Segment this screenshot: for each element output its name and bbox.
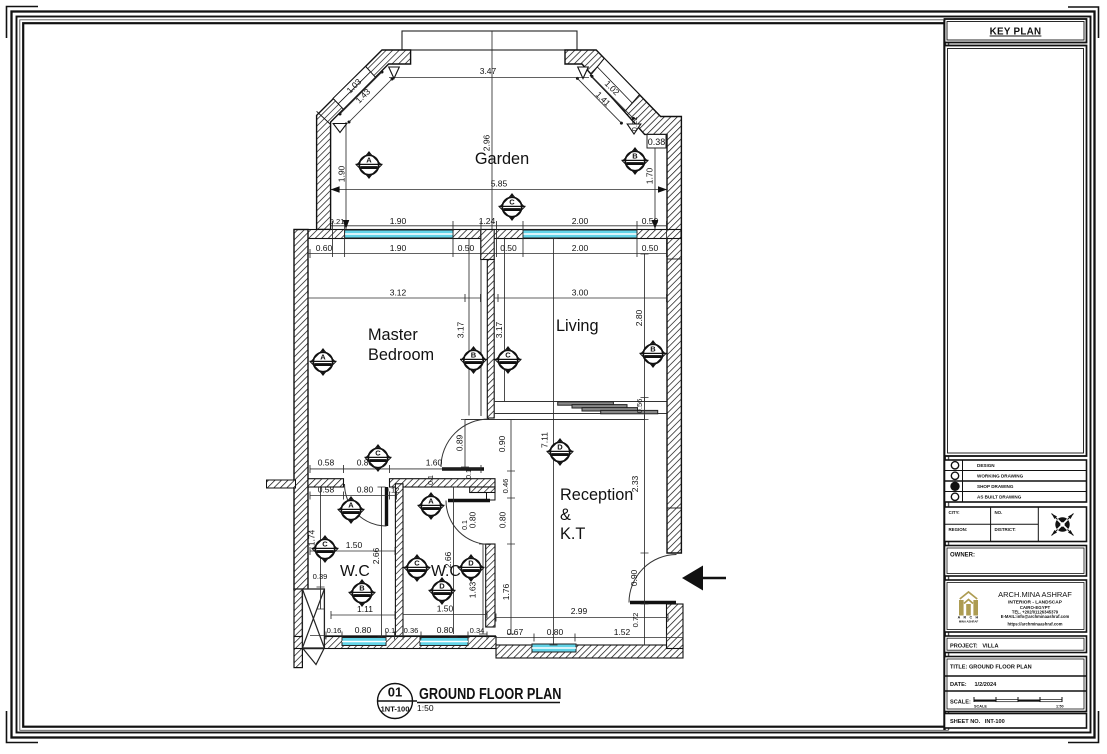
- svg-text:REGION:: REGION:: [949, 527, 968, 532]
- svg-text:C: C: [505, 350, 511, 359]
- svg-text:1.74: 1.74: [307, 529, 317, 546]
- svg-text:0.1: 0.1: [466, 469, 473, 479]
- svg-text:1.24: 1.24: [479, 216, 496, 226]
- svg-text:Living: Living: [556, 317, 599, 335]
- svg-text:CITY:: CITY:: [949, 510, 961, 515]
- svg-text:2.00: 2.00: [572, 243, 589, 253]
- svg-text:DESIGN: DESIGN: [977, 463, 995, 468]
- svg-text:0.1: 0.1: [462, 520, 469, 530]
- svg-text:1.11: 1.11: [357, 604, 373, 614]
- svg-text:C: C: [322, 539, 328, 548]
- svg-text:0.39: 0.39: [313, 572, 328, 581]
- svg-text:3.17: 3.17: [456, 321, 466, 338]
- svg-text:KEY PLAN: KEY PLAN: [990, 27, 1042, 38]
- svg-text:ARCH.MINA ASHRAF: ARCH.MINA ASHRAF: [998, 590, 1072, 599]
- svg-text:1.60: 1.60: [426, 458, 443, 468]
- svg-text:2.00: 2.00: [572, 216, 589, 226]
- svg-text:https://archminaashraf.com: https://archminaashraf.com: [1008, 622, 1063, 627]
- svg-text:0.90: 0.90: [629, 569, 639, 586]
- svg-text:&: &: [560, 506, 571, 524]
- svg-text:1.52: 1.52: [614, 627, 631, 637]
- svg-text:1.90: 1.90: [390, 216, 407, 226]
- svg-text:A: A: [428, 496, 434, 505]
- svg-text:0.72: 0.72: [631, 613, 640, 628]
- svg-text:0.60: 0.60: [316, 243, 333, 253]
- svg-text:0.50: 0.50: [642, 243, 659, 253]
- svg-text:A: A: [366, 155, 372, 164]
- svg-text:1.50: 1.50: [437, 604, 454, 614]
- svg-text:Garden: Garden: [475, 150, 529, 168]
- svg-text:DATE: 1/2/2024: DATE: 1/2/2024: [950, 682, 997, 688]
- svg-text:Reception: Reception: [560, 486, 633, 504]
- svg-text:B: B: [471, 350, 477, 359]
- svg-text:0.1: 0.1: [428, 475, 435, 485]
- svg-text:A: A: [320, 352, 326, 361]
- svg-text:0.80: 0.80: [547, 627, 564, 637]
- svg-text:3.17: 3.17: [494, 321, 504, 338]
- svg-text:1NT-100: 1NT-100: [381, 705, 410, 714]
- svg-text:E-MAIL:info@archminaashraf.com: E-MAIL:info@archminaashraf.com: [1001, 614, 1070, 619]
- svg-text:0.50: 0.50: [458, 243, 475, 253]
- svg-text:B: B: [632, 151, 638, 160]
- svg-text:NO.: NO.: [995, 510, 1003, 515]
- svg-text:3.00: 3.00: [572, 288, 589, 298]
- svg-text:0.80: 0.80: [355, 625, 372, 635]
- svg-text:W.C: W.C: [340, 563, 370, 580]
- svg-text:0.80: 0.80: [437, 625, 454, 635]
- svg-text:WORKING DRAWING: WORKING DRAWING: [977, 474, 1024, 479]
- svg-text:B: B: [650, 344, 656, 353]
- svg-text:A: A: [348, 500, 354, 509]
- svg-text:0.58: 0.58: [318, 485, 335, 495]
- svg-text:SHOP DRAWING: SHOP DRAWING: [977, 484, 1014, 489]
- svg-text:AS BUILT DRAWING: AS BUILT DRAWING: [977, 495, 1022, 500]
- svg-text:0.46: 0.46: [501, 479, 510, 494]
- svg-text:1.63: 1.63: [468, 581, 478, 598]
- svg-text:0.34: 0.34: [470, 626, 485, 635]
- svg-text:C: C: [414, 558, 420, 567]
- svg-text:W.C: W.C: [431, 563, 461, 580]
- svg-text:K.T: K.T: [560, 525, 585, 543]
- svg-text:0.36: 0.36: [404, 626, 419, 635]
- svg-text:3.12: 3.12: [390, 288, 407, 298]
- svg-text:0.80: 0.80: [357, 485, 374, 495]
- svg-text:1.76: 1.76: [501, 583, 511, 600]
- svg-text:7.11: 7.11: [540, 432, 550, 448]
- svg-text:0.21: 0.21: [630, 117, 639, 132]
- svg-text:D: D: [557, 442, 563, 451]
- svg-text:SCALE:: SCALE:: [950, 700, 971, 706]
- svg-text:PROJECT: VILLA: PROJECT: VILLA: [950, 644, 998, 650]
- svg-text:2.96: 2.96: [482, 134, 492, 151]
- svg-text:0.90: 0.90: [497, 435, 507, 452]
- svg-text:0.67: 0.67: [507, 627, 524, 637]
- svg-text:2.66: 2.66: [371, 547, 381, 564]
- svg-text:Bedroom: Bedroom: [368, 346, 434, 364]
- svg-text:1:50: 1:50: [1056, 705, 1064, 709]
- svg-text:D: D: [439, 581, 445, 590]
- svg-text:2.80: 2.80: [634, 309, 644, 326]
- svg-text:5.85: 5.85: [491, 179, 508, 189]
- svg-text:0.89: 0.89: [455, 434, 465, 451]
- svg-text:DISTRICT:: DISTRICT:: [995, 527, 1017, 532]
- svg-text:1.90: 1.90: [337, 165, 347, 182]
- svg-text:C: C: [509, 197, 515, 206]
- svg-text:MINA ASHRAF: MINA ASHRAF: [959, 620, 979, 624]
- svg-text:01: 01: [388, 685, 402, 700]
- svg-text:3.47: 3.47: [480, 66, 497, 76]
- svg-text:0.16: 0.16: [327, 626, 342, 635]
- svg-text:0.21: 0.21: [330, 217, 345, 226]
- svg-text:0.56: 0.56: [635, 399, 644, 414]
- svg-text:0.1: 0.1: [385, 626, 396, 635]
- svg-text:SCALE: SCALE: [974, 705, 987, 709]
- svg-text:0.80: 0.80: [468, 511, 478, 528]
- svg-text:0.50: 0.50: [500, 243, 517, 253]
- svg-text:0.50: 0.50: [642, 216, 659, 226]
- svg-text:TITLE: GROUND FLOOR PLAN: TITLE: GROUND FLOOR PLAN: [950, 665, 1032, 671]
- svg-text:OWNER:: OWNER:: [950, 553, 975, 559]
- svg-text:1.50: 1.50: [346, 540, 363, 550]
- svg-text:2.99: 2.99: [571, 606, 588, 616]
- svg-text:C: C: [375, 448, 381, 457]
- svg-text:1.90: 1.90: [390, 243, 407, 253]
- svg-text:SHEET NO. INT-100: SHEET NO. INT-100: [950, 719, 1005, 725]
- svg-text:D: D: [468, 558, 474, 567]
- svg-text:GROUND FLOOR PLAN: GROUND FLOOR PLAN: [419, 686, 561, 703]
- svg-text:1.70: 1.70: [645, 167, 655, 184]
- svg-text:0.38: 0.38: [648, 137, 666, 147]
- svg-text:0.80: 0.80: [498, 511, 508, 528]
- svg-text:1:50: 1:50: [417, 703, 434, 713]
- svg-text:0.12: 0.12: [385, 486, 400, 495]
- svg-text:B: B: [359, 583, 365, 592]
- svg-text:0.58: 0.58: [318, 458, 335, 468]
- svg-text:Master: Master: [368, 326, 418, 344]
